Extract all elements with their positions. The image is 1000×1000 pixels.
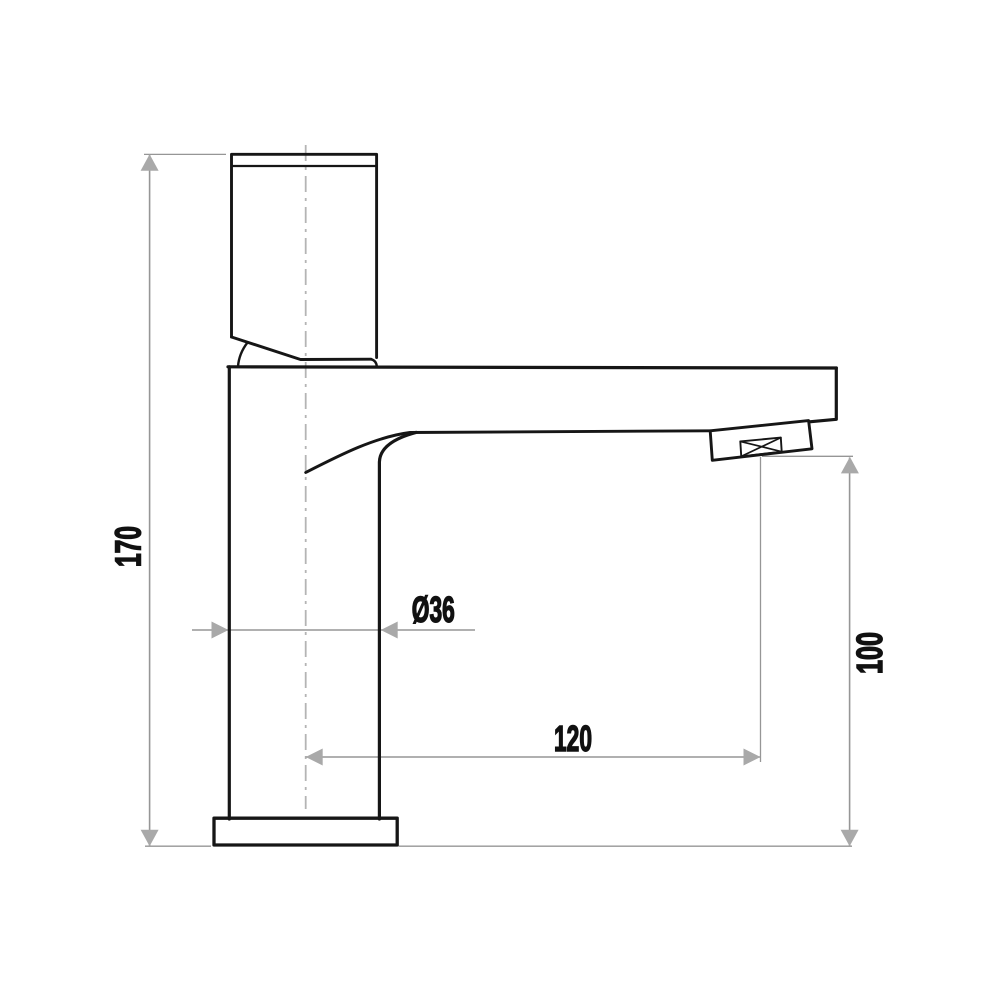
svg-text:Ø36: Ø36 bbox=[412, 589, 455, 630]
svg-text:100: 100 bbox=[849, 632, 890, 674]
svg-text:170: 170 bbox=[108, 526, 149, 567]
svg-text:120: 120 bbox=[554, 718, 592, 759]
